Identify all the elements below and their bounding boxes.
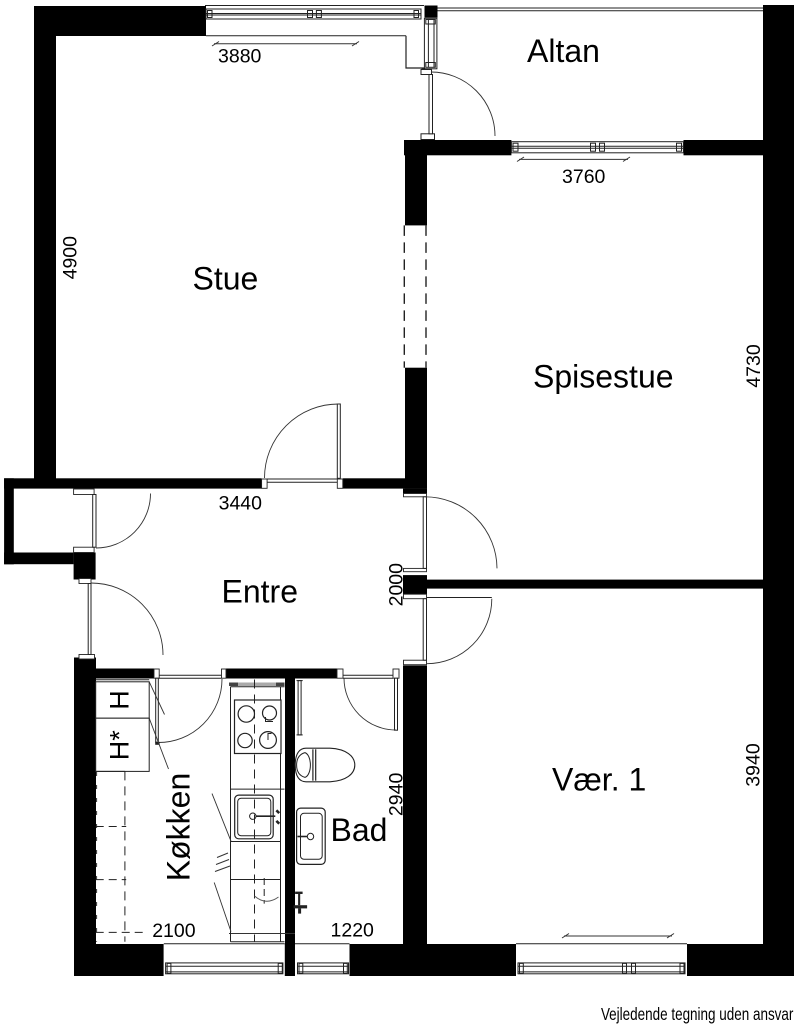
- svg-text:3440: 3440: [219, 493, 263, 515]
- svg-text:3940: 3940: [743, 743, 765, 787]
- svg-text:Stue: Stue: [193, 261, 259, 297]
- svg-text:Bad: Bad: [331, 812, 388, 848]
- svg-text:Altan: Altan: [527, 33, 600, 69]
- svg-text:2100: 2100: [152, 920, 196, 942]
- svg-text:2940: 2940: [386, 773, 408, 817]
- svg-text:3760: 3760: [562, 166, 606, 188]
- svg-text:Entre: Entre: [222, 574, 298, 610]
- svg-text:Vær. 1: Vær. 1: [552, 762, 646, 798]
- svg-text:H*: H*: [105, 730, 135, 760]
- svg-text:2000: 2000: [385, 563, 407, 607]
- svg-text:4730: 4730: [743, 344, 765, 388]
- svg-text:1220: 1220: [331, 920, 375, 942]
- svg-text:4900: 4900: [60, 236, 82, 280]
- svg-text:Spisestue: Spisestue: [533, 359, 674, 395]
- svg-text:Vejledende tegning uden ansvar: Vejledende tegning uden ansvar: [601, 1005, 793, 1024]
- svg-text:Køkken: Køkken: [161, 773, 197, 881]
- svg-text:3880: 3880: [218, 46, 262, 68]
- svg-text:H: H: [105, 690, 135, 710]
